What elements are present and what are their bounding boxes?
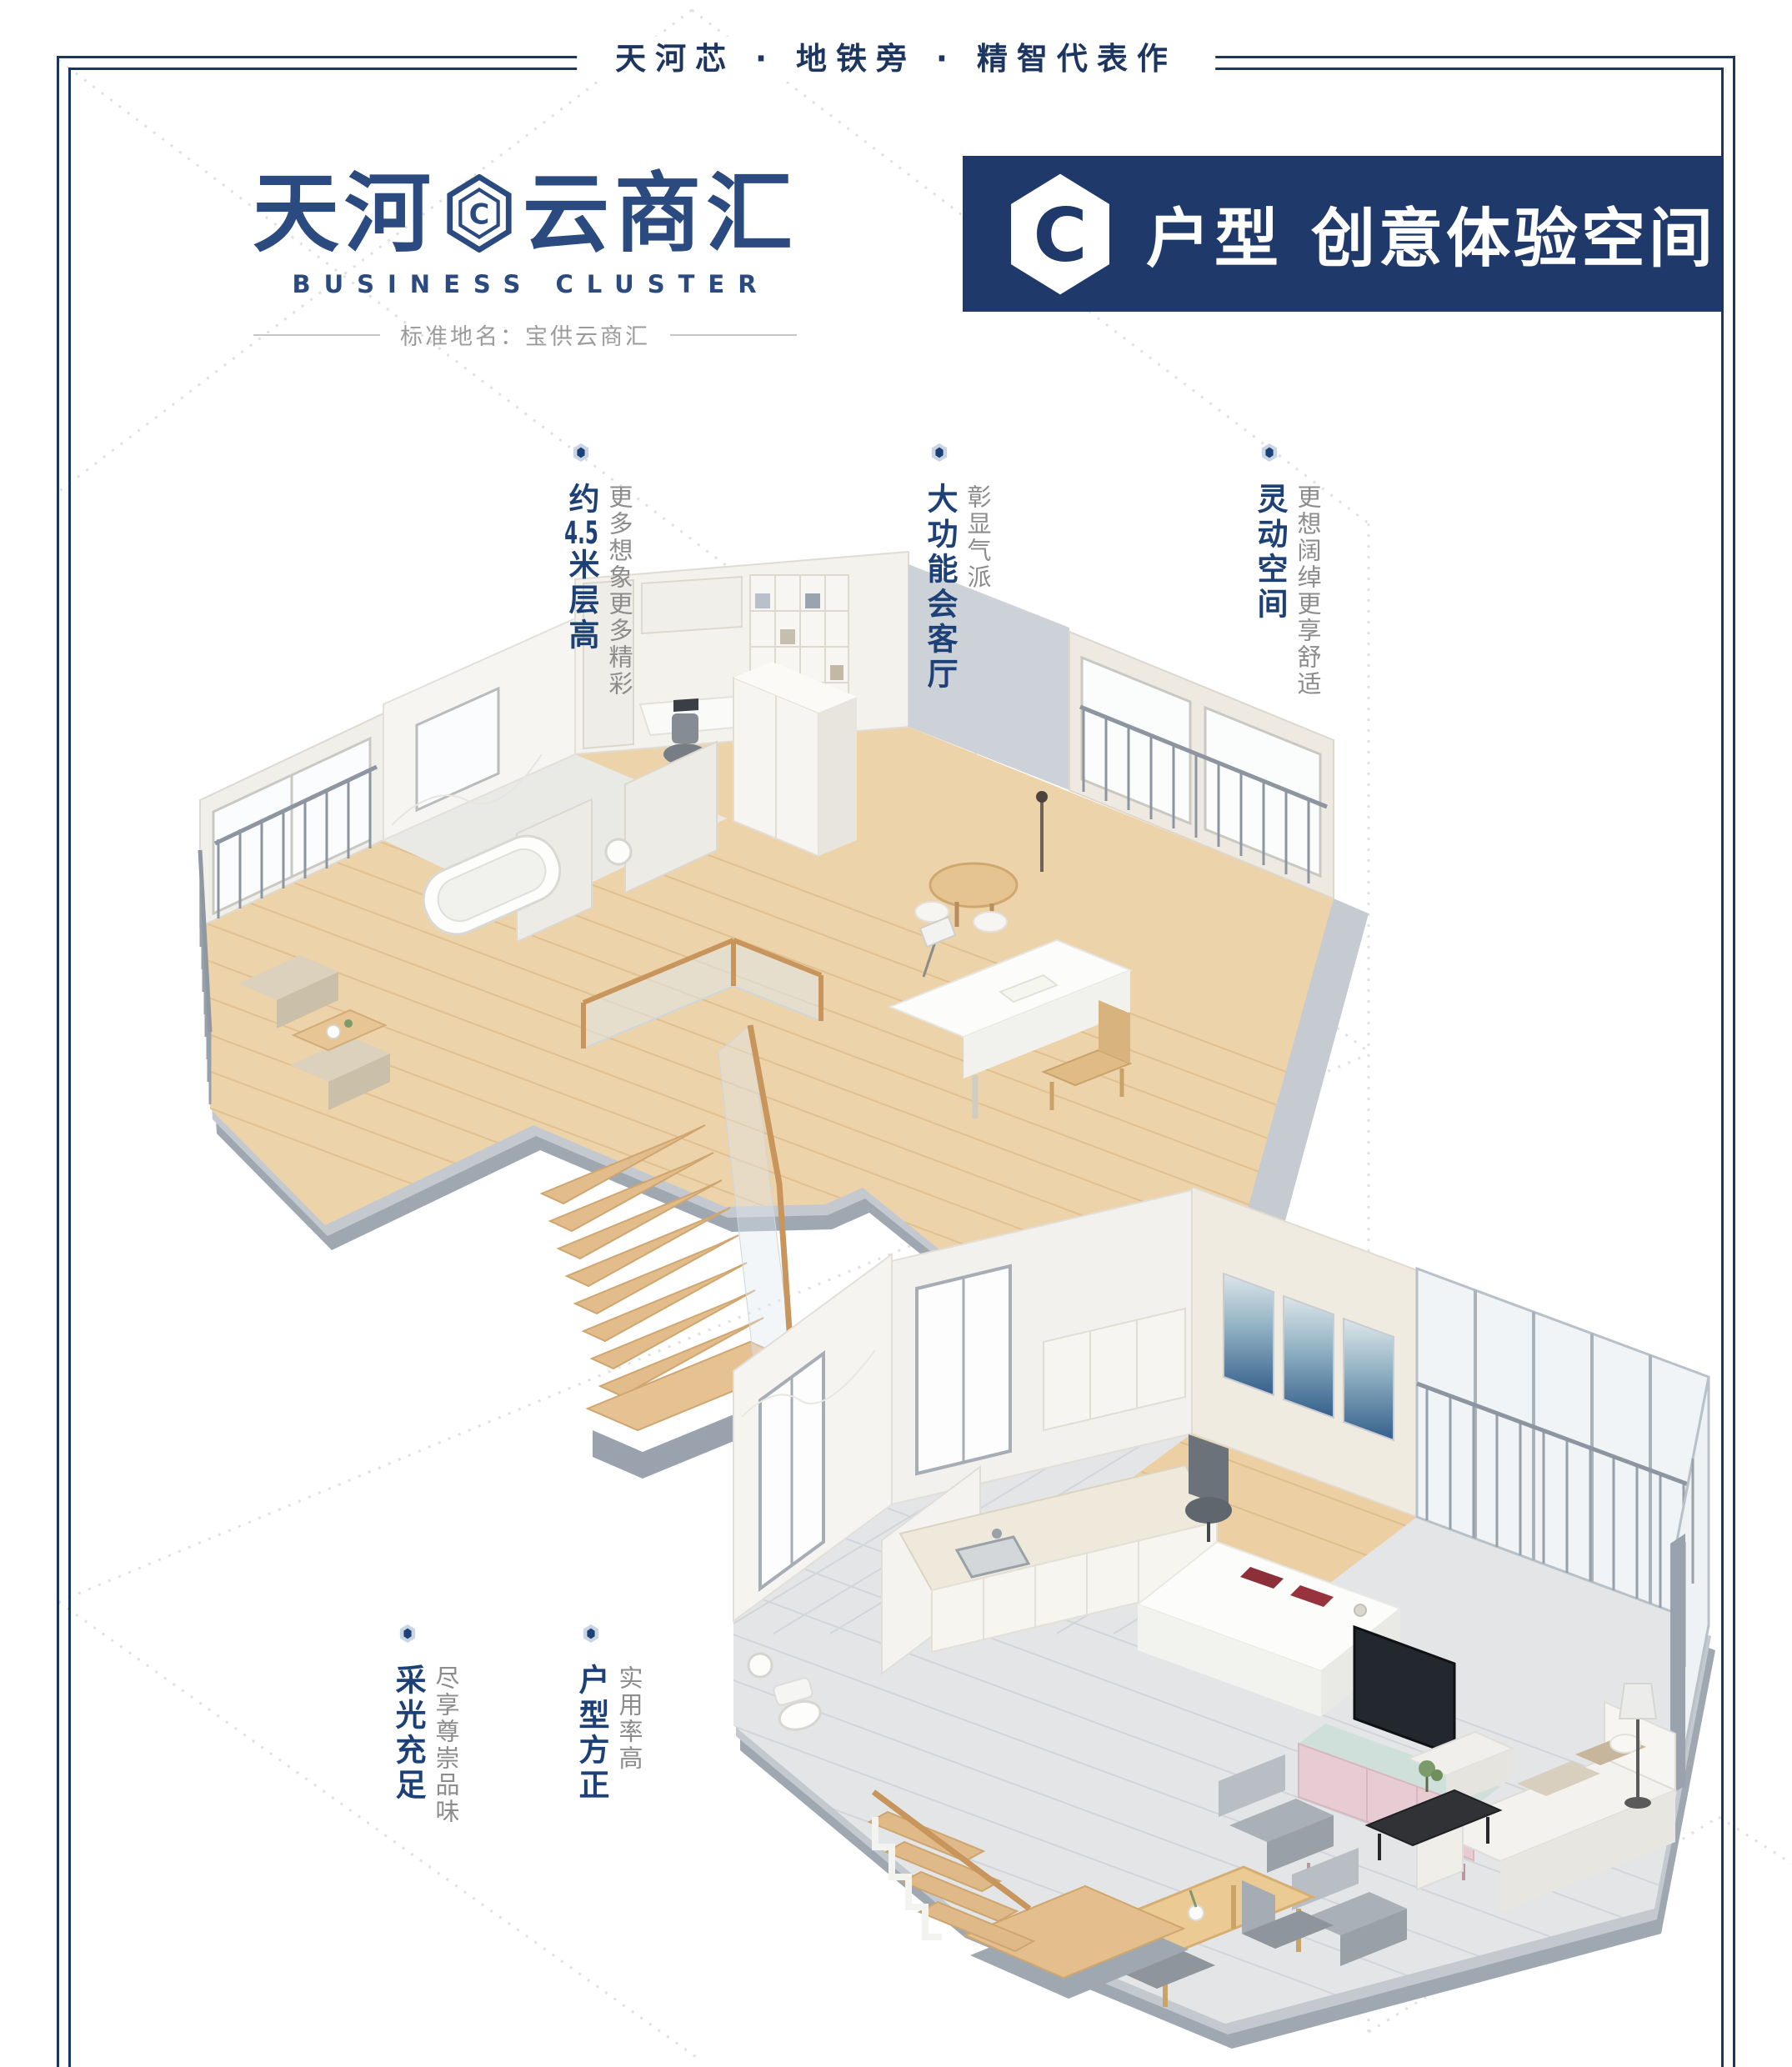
hexagon-dot-icon xyxy=(398,1624,417,1644)
unit-type-label: 户型 xyxy=(1146,188,1283,280)
hexagon-dot-icon xyxy=(1260,443,1279,463)
feature-subtitle: 更想阔绰更享舒适 xyxy=(1294,484,1321,698)
feature-annotation: 灵动空间 更想阔绰更享舒适 xyxy=(1253,443,1608,698)
hexagon-c-icon: C xyxy=(1004,172,1116,297)
standard-name-row: 标准地名：宝供云商汇 xyxy=(242,318,808,351)
logo-subtitle: BUSINESS CLUSTER xyxy=(242,270,808,298)
hexagon-dot-icon xyxy=(582,1624,600,1644)
feature-subtitle: 更多想象更多精彩 xyxy=(606,484,633,698)
hexagon-dot-icon xyxy=(572,443,590,463)
banner-hex-letter: C xyxy=(1034,193,1088,278)
logo-row: 天河 C 云商汇 xyxy=(242,163,808,263)
feature-title: 灵动空间 xyxy=(1253,483,1286,698)
hexagon-dot-icon xyxy=(930,443,949,463)
standard-name: 标准地名：宝供云商汇 xyxy=(400,318,650,351)
feature-title: 采光充足 xyxy=(391,1664,424,1825)
page-border-inner xyxy=(68,68,1724,2067)
logo-name-left: 天河 xyxy=(253,163,436,263)
poster-page: 天河芯 · 地铁旁 · 精智代表作 天河 C 云商汇 BUSINESS CLUS… xyxy=(0,0,1792,2060)
top-tagline: 天河芯 · 地铁旁 · 精智代表作 xyxy=(577,37,1215,82)
feature-title: 户型方正 xyxy=(574,1664,608,1804)
feature-annotation: 大功能会客厅 彰显气派 xyxy=(923,443,1238,693)
feature-annotation: 户型方正 实用率高 xyxy=(574,1624,823,1804)
feature-subtitle: 彰显气派 xyxy=(964,484,991,693)
unit-banner: C 户型 创意体验空间 xyxy=(963,156,1721,312)
feature-subtitle: 尽享尊崇品味 xyxy=(433,1665,459,1825)
feature-annotation: 约4.5米层高 更多想象更多精彩 xyxy=(564,443,633,698)
hexagon-c-icon: C xyxy=(444,174,514,253)
feature-subtitle: 实用率高 xyxy=(616,1665,643,1804)
divider-line xyxy=(670,334,797,336)
logo-name-right: 云商汇 xyxy=(523,163,798,263)
banner-title: 创意体验空间 xyxy=(1311,188,1716,280)
feature-title: 大功能会客厅 xyxy=(923,483,956,693)
logo: 天河 C 云商汇 BUSINESS CLUSTER 标准地名：宝供云商汇 xyxy=(242,163,808,351)
feature-title: 约4.5米层高 xyxy=(564,483,598,698)
divider-line xyxy=(253,334,380,336)
logo-hex-letter: C xyxy=(469,198,490,231)
